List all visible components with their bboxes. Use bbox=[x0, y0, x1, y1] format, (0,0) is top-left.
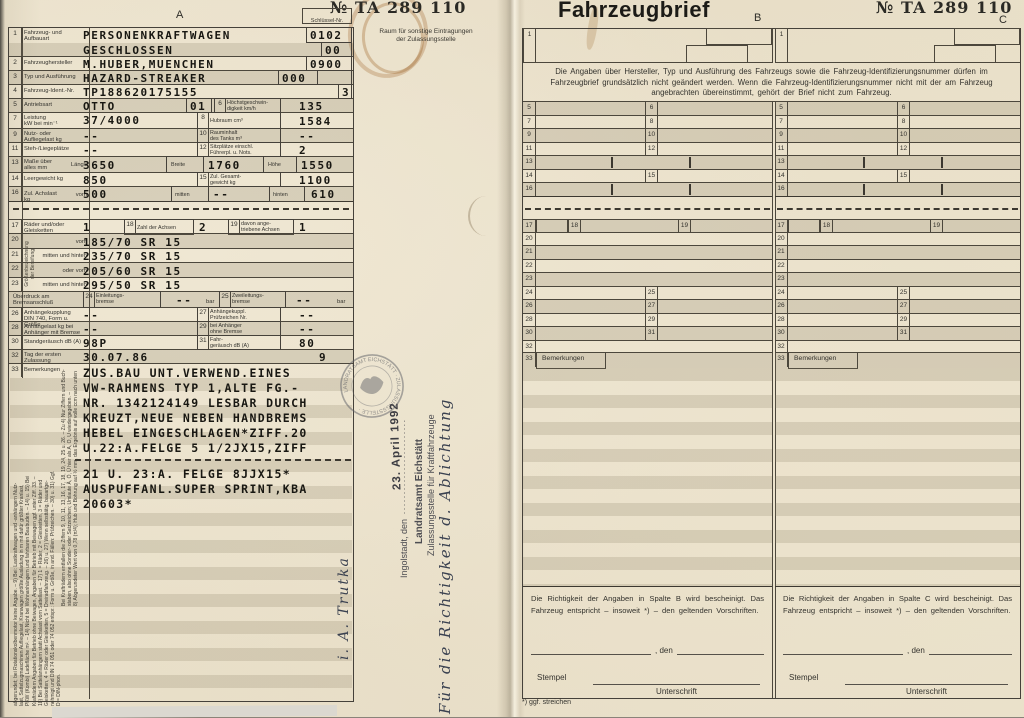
field-16-hinten-box: hinten bbox=[269, 186, 305, 202]
bemerkungen-text-2: 21 U. 23:A. FELGE 8JJX15* AUSPUFFANL.SUP… bbox=[83, 467, 308, 512]
field-11-value: -- bbox=[83, 144, 99, 157]
row-number-15: 15 bbox=[198, 173, 209, 186]
b-row-number-1: 1 bbox=[523, 28, 536, 63]
row-number-4: 4 bbox=[9, 85, 22, 98]
row-number-19: 19 bbox=[229, 220, 240, 234]
b-bem-label: Bemerkungen bbox=[542, 355, 584, 362]
field-24-labelbox: 24 Einleitungs- bremse bbox=[83, 291, 161, 308]
field-16-sublabel-mitten: mitten bbox=[175, 192, 207, 198]
b-n26: 26 bbox=[523, 300, 536, 313]
c-n23: 23 bbox=[775, 273, 788, 286]
c-row-11: 1112 bbox=[775, 143, 1020, 156]
b-row-13: 13 bbox=[523, 156, 772, 170]
b-n20: 20 bbox=[523, 233, 536, 245]
row-number-6: 6 bbox=[215, 99, 226, 112]
bc-divider-main bbox=[772, 102, 773, 698]
row-21: 21 mitten und hinten 235/70 SR 15 bbox=[9, 249, 353, 263]
section-dashed-line bbox=[13, 208, 349, 210]
c-n19: 19 bbox=[930, 219, 943, 233]
field-6-value: 135 bbox=[299, 100, 324, 113]
b-n14: 14 bbox=[523, 170, 536, 182]
stamp-dept-line: Zulassungsstelle für Kraftfahrzeuge bbox=[426, 302, 436, 556]
c-row-14: 1415 bbox=[775, 170, 1020, 183]
c-row-22: 22 bbox=[775, 260, 1020, 273]
notice-band: Die Angaben über Hersteller, Typ und Aus… bbox=[523, 63, 1020, 102]
field-8-label: Hubraum cm³ bbox=[210, 118, 279, 124]
row-13: 13 Maße über alles mm Länge 3650 Breite … bbox=[9, 157, 353, 173]
c-n24: 24 bbox=[775, 287, 788, 299]
row-number-5: 5 bbox=[9, 99, 22, 112]
field-25-label: Zweileitungs- bremse bbox=[232, 293, 284, 305]
field-8-labelbox: 8 Hubraum cm³ bbox=[197, 112, 281, 129]
c-row-23: 23 bbox=[775, 273, 1020, 287]
field-2-code: 0900 bbox=[306, 56, 352, 71]
field-6-label: Höchstgeschwin- digkeit km/h bbox=[227, 100, 279, 112]
b-17-subbox bbox=[536, 219, 568, 233]
row-22: 22 oder vorn 205/60 SR 15 bbox=[9, 263, 353, 278]
cert-b-text: Die Richtigkeit der Angaben in Spalte B … bbox=[531, 593, 764, 616]
row-number-11: 11 bbox=[9, 143, 22, 156]
b-n28: 28 bbox=[523, 314, 536, 326]
footnotes-column-b: Bei Krafträdern entfallen die Ziffern 9,… bbox=[61, 366, 87, 606]
b-16-tick2 bbox=[689, 184, 691, 195]
field-13-length: 3650 bbox=[83, 159, 116, 172]
c-row-33: 33 Bemerkungen bbox=[775, 353, 1020, 368]
field-7-value: 37/4000 bbox=[83, 114, 141, 127]
field-24-value: -- bbox=[176, 294, 192, 307]
field-32-value: 30.07.86 bbox=[83, 351, 149, 364]
bc-divider-top bbox=[772, 29, 773, 63]
b-bem-stripes bbox=[523, 368, 772, 586]
b-n24: 24 bbox=[523, 287, 536, 299]
field-3-value: HAZARD-STREAKER bbox=[83, 72, 206, 85]
schluessel-nr-box: Schlüssel-Nr. bbox=[302, 8, 352, 24]
field-32-code: 9 bbox=[319, 351, 327, 364]
cert-block-c: Die Richtigkeit der Angaben in Spalte C … bbox=[775, 586, 1020, 698]
field-13-sublabel-hoehe: Höhe bbox=[268, 162, 295, 168]
c-n28: 28 bbox=[775, 314, 788, 326]
field-21-sublabel: mitten und hinten bbox=[39, 253, 87, 259]
cert-b-den-label: , den bbox=[651, 646, 677, 655]
field-16-label: Zul. Achslast kg bbox=[24, 191, 64, 204]
row-number-20: 20 bbox=[9, 234, 22, 248]
c-n15: 15 bbox=[897, 169, 910, 183]
b-row-14: 1415 bbox=[523, 170, 772, 183]
b-row1-subbox-bottom bbox=[686, 45, 748, 63]
field-19-labelbox: 19 davon ange- triebene Achsen bbox=[228, 219, 294, 235]
field-16-middle: -- bbox=[213, 188, 229, 201]
row-number-21: 21 bbox=[9, 249, 22, 262]
row-1b: GESCHLOSSEN 00 bbox=[9, 43, 353, 57]
b-n12: 12 bbox=[645, 142, 658, 156]
field-8-value: 1584 bbox=[299, 115, 332, 128]
b-n27: 27 bbox=[645, 299, 658, 314]
field-16-mitten-box: mitten bbox=[171, 186, 209, 202]
field-16-sublabel-hinten: hinten bbox=[273, 192, 303, 198]
stamp-city-line: Ingolstadt, den bbox=[399, 519, 409, 578]
b-row-9: 910 bbox=[523, 129, 772, 143]
raum-note: Raum für sonstige Eintragungen der Zulas… bbox=[360, 28, 492, 44]
cert-c-date-line: , den bbox=[783, 644, 1012, 655]
row-number-10: 10 bbox=[198, 129, 209, 142]
scan-edge-left bbox=[0, 0, 5, 717]
c-row1-subbox-bottom bbox=[934, 45, 996, 63]
row-number-18: 18 bbox=[125, 220, 136, 234]
field-9-label: Nutz- oder Aufliegelast kg bbox=[24, 131, 86, 144]
field-3-code: 000 bbox=[278, 70, 318, 85]
field-23-sublabel: mitten und hinten bbox=[39, 282, 87, 288]
c-n10: 10 bbox=[897, 128, 910, 143]
c-n26: 26 bbox=[775, 300, 788, 313]
row-number-24: 24 bbox=[84, 292, 95, 307]
stain-arc-fold bbox=[468, 196, 504, 236]
row-number-2: 2 bbox=[9, 57, 22, 70]
field-27-label: Anhängekuppl. Prüfzeichen Nr. bbox=[210, 309, 279, 321]
b-n33: 33 bbox=[523, 353, 536, 367]
b-row-23: 23 bbox=[523, 273, 772, 287]
c-n29: 29 bbox=[897, 313, 910, 327]
c-n33: 33 bbox=[775, 353, 788, 367]
grid-block-c: 56 78 910 1112 13 1415 16 17 18 19 20 21… bbox=[775, 102, 1020, 586]
b-n19: 19 bbox=[678, 219, 691, 233]
b-row-20: 20 bbox=[523, 233, 772, 246]
field-17-label: Räder und/oder Gleisketten bbox=[24, 222, 86, 235]
field-22-sublabel: oder vorn bbox=[39, 268, 87, 274]
c-row-5: 56 bbox=[775, 102, 1020, 116]
field-6-labelbox: 6 Höchstgeschwin- digkeit km/h bbox=[214, 98, 281, 113]
b-13-tick1 bbox=[611, 157, 613, 168]
field-28-value: -- bbox=[83, 323, 99, 336]
field-13-height: 1550 bbox=[301, 159, 334, 172]
office-stamp-block: Ingolstadt, den ························… bbox=[394, 302, 440, 578]
field-14-value: 850 bbox=[83, 174, 108, 187]
row-2: 2 Fahrzeughersteller M.HUBER,MUENCHEN 09… bbox=[9, 57, 353, 71]
field-29-value: -- bbox=[299, 323, 315, 336]
c-n31: 31 bbox=[897, 326, 910, 341]
cert-c-place-line bbox=[783, 644, 903, 655]
field-4-value: TP188620175155 bbox=[83, 86, 198, 99]
c-bem-stripes bbox=[775, 368, 1020, 586]
c-n14: 14 bbox=[775, 170, 788, 182]
row-20: 20 vorn 185/70 SR 15 bbox=[9, 234, 353, 249]
c-row1-subbox-top bbox=[954, 28, 1020, 45]
b-row-16: 16 bbox=[523, 183, 772, 197]
field-5-value: OTTO bbox=[83, 100, 116, 113]
c-17-subbox bbox=[788, 219, 820, 233]
cert-b-unterschrift-label: Unterschrift bbox=[656, 687, 697, 696]
field-18-value: 2 bbox=[199, 221, 207, 234]
field-16-rear: 610 bbox=[311, 188, 336, 201]
field-15-label: Zul. Gesamt- gewicht kg bbox=[210, 174, 279, 186]
cert-block-b: Die Richtigkeit der Angaben in Spalte B … bbox=[523, 586, 772, 698]
column-b-label: B bbox=[754, 12, 761, 24]
b-n25: 25 bbox=[645, 286, 658, 300]
cert-c-date-rule bbox=[929, 644, 1012, 655]
b-n29: 29 bbox=[645, 313, 658, 327]
c-n11: 11 bbox=[775, 143, 788, 155]
field-1b-code: 00 bbox=[321, 42, 352, 57]
field-30-label: Standgeräusch dB (A) bbox=[24, 339, 86, 345]
b-n8: 8 bbox=[645, 115, 658, 129]
c-n8: 8 bbox=[897, 115, 910, 129]
c-n22: 22 bbox=[775, 260, 788, 272]
c-row-13: 13 bbox=[775, 156, 1020, 170]
row-9: 9 Nutz- oder Aufliegelast kg -- 10 Raumi… bbox=[9, 129, 353, 143]
c-n17: 17 bbox=[775, 220, 788, 233]
field-32-label: Tag der ersten Zulassung bbox=[24, 352, 86, 365]
c-n32: 32 bbox=[775, 341, 788, 352]
field-1-value: PERSONENKRAFTWAGEN bbox=[83, 29, 231, 42]
b-n13: 13 bbox=[523, 156, 536, 169]
field-10-label: Rauminhalt des Tanks m³ bbox=[210, 130, 279, 142]
b-n17: 17 bbox=[523, 220, 536, 233]
c-16-tick2 bbox=[941, 184, 943, 195]
field-27-labelbox: 27 Anhängekuppl. Prüfzeichen Nr. bbox=[197, 307, 281, 322]
row-32: 32 Tag der ersten Zulassung 30.07.86 9 bbox=[9, 350, 353, 364]
schluessel-nr-label: Schlüssel-Nr. bbox=[311, 18, 343, 24]
cert-c-stempel-label: Stempel bbox=[789, 673, 818, 682]
row-number-17: 17 bbox=[9, 220, 22, 234]
row-30: 30 Standgeräusch dB (A) 98P 31 Fahr- ger… bbox=[9, 336, 353, 350]
document-title: Fahrzeugbrief bbox=[558, 0, 710, 23]
b-row-17: 17 18 19 bbox=[523, 219, 772, 233]
c-dashed-line bbox=[777, 208, 1018, 210]
row-number-23: 23 bbox=[9, 278, 22, 291]
field-3-code-empty bbox=[317, 70, 352, 85]
b-n7: 7 bbox=[523, 116, 536, 128]
c-bem-labelbox: Bemerkungen bbox=[788, 352, 858, 369]
c-row-26: 2627 bbox=[775, 300, 1020, 314]
cert-b-date-rule bbox=[677, 644, 764, 655]
field-24-header-label: Überdruck am Bremsanschluß bbox=[13, 294, 87, 307]
field-2-value: M.HUBER,MUENCHEN bbox=[83, 58, 215, 71]
field-24-label: Einleitungs- bremse bbox=[96, 293, 159, 305]
c-n5: 5 bbox=[775, 102, 788, 115]
row-number-26: 26 bbox=[9, 308, 22, 321]
scan-edge-bottom bbox=[52, 705, 337, 718]
right-page-footnote: *) ggf. streichen bbox=[522, 699, 571, 706]
c-n6: 6 bbox=[897, 101, 910, 116]
column-a-label: A bbox=[176, 9, 183, 21]
field-1b-value: GESCHLOSSEN bbox=[83, 44, 173, 57]
b-row-1: 1 bbox=[523, 29, 772, 63]
field-21-value: 235/70 SR 15 bbox=[83, 250, 182, 263]
cert-b-date-line: , den bbox=[531, 644, 764, 655]
field-11-label: Steh-/Liegeplätze bbox=[24, 146, 86, 152]
c-n27: 27 bbox=[897, 299, 910, 314]
field-13-width: 1760 bbox=[208, 159, 241, 172]
stamp-office-line: Landratsamt Eichstätt bbox=[414, 302, 425, 544]
c-n30: 30 bbox=[775, 327, 788, 340]
row-14: 14 Leergewicht kg 850 15 Zul. Gesamt- ge… bbox=[9, 173, 353, 187]
c-n18: 18 bbox=[820, 219, 833, 233]
c-n20: 20 bbox=[775, 233, 788, 245]
cert-b-place-line bbox=[531, 644, 651, 655]
c-n25: 25 bbox=[897, 286, 910, 300]
field-5-label: Antriebsart bbox=[24, 102, 86, 108]
field-15-labelbox: 15 Zul. Gesamt- gewicht kg bbox=[197, 172, 281, 187]
row-number-13: 13 bbox=[9, 157, 22, 172]
c-row-20: 20 bbox=[775, 233, 1020, 246]
field-13-breite-box: Breite bbox=[166, 156, 204, 173]
row-number-16: 16 bbox=[9, 187, 22, 201]
field-7-label: Leistung kW bei min⁻¹ bbox=[24, 115, 86, 128]
field-26-value: -- bbox=[83, 309, 99, 322]
row-number-25: 25 bbox=[220, 292, 231, 307]
b-n16: 16 bbox=[523, 183, 536, 196]
field-25-unit: bar bbox=[337, 299, 351, 305]
cert-b-stempel-label: Stempel bbox=[537, 673, 566, 682]
serial-number-right: № TA 289 110 bbox=[876, 0, 1012, 17]
b-n32: 32 bbox=[523, 341, 536, 352]
right-form-table: 1 1 Die Angaben über Hersteller, Typ und… bbox=[522, 28, 1021, 699]
row-17: 17 Räder und/oder Gleisketten 1 18 Zahl … bbox=[9, 219, 353, 234]
eagle-emblem-icon bbox=[358, 374, 385, 396]
c-13-tick2 bbox=[941, 157, 943, 168]
field-12-label: Sitzplätze einschl. Führerpl. u. Nots. bbox=[210, 144, 279, 156]
row-number-22: 22 bbox=[9, 263, 22, 277]
field-4-code: 3 bbox=[338, 84, 352, 99]
row-number-31: 31 bbox=[198, 336, 209, 349]
field-13-label: Maße über alles mm bbox=[24, 159, 60, 172]
b-row1-subbox-top bbox=[706, 28, 772, 45]
c-row-9: 910 bbox=[775, 129, 1020, 143]
c-row-30: 3031 bbox=[775, 327, 1020, 341]
field-10-value: -- bbox=[299, 130, 315, 143]
b-row-26: 2627 bbox=[523, 300, 772, 314]
row-16: 16 Zul. Achslast kg vorn 500 mitten -- h… bbox=[9, 187, 353, 202]
field-9-value: -- bbox=[83, 130, 99, 143]
field-24-unit: bar bbox=[206, 299, 220, 305]
c-n13: 13 bbox=[775, 156, 788, 169]
notice-text: Die Angaben über Hersteller, Typ und Aus… bbox=[537, 67, 1006, 99]
row-28: 28 Anhängelast kg bei Anhänger mit Brems… bbox=[9, 322, 353, 336]
c-13-tick1 bbox=[863, 157, 865, 168]
b-n18: 18 bbox=[568, 219, 581, 233]
cert-c-unterschrift: Unterschrift bbox=[845, 684, 1008, 696]
field-1-code: 0102 bbox=[306, 27, 352, 43]
field-4-label: Fahrzeug-Ident.-Nr. bbox=[24, 88, 86, 94]
b-n15: 15 bbox=[645, 169, 658, 183]
cert-b-unterschrift: Unterschrift bbox=[593, 684, 760, 696]
b-row-33: 33 Bemerkungen bbox=[523, 353, 772, 368]
c-n21: 21 bbox=[775, 246, 788, 259]
c-16-tick1 bbox=[863, 184, 865, 195]
field-29-label: bei Anhänger ohne Bremse bbox=[210, 323, 279, 335]
field-16-front: 500 bbox=[83, 188, 108, 201]
b-n10: 10 bbox=[645, 128, 658, 143]
b-16-tick1 bbox=[611, 184, 613, 195]
field-18-label: Zahl der Achsen bbox=[137, 225, 192, 231]
field-14-label: Leergewicht kg bbox=[24, 176, 86, 182]
field-19-value: 1 bbox=[299, 221, 307, 234]
row-number-8: 8 bbox=[198, 113, 209, 128]
field-20-sublabel: vorn bbox=[39, 239, 87, 245]
bemerkungen-dashed-line bbox=[75, 459, 351, 461]
c-row-17: 17 18 19 bbox=[775, 219, 1020, 233]
field-13-hoehe-box: Höhe bbox=[263, 156, 297, 173]
row-7: 7 Leistung kW bei min⁻¹ 37/4000 8 Hubrau… bbox=[9, 113, 353, 129]
row-3: 3 Typ und Ausführung HAZARD-STREAKER 000 bbox=[9, 71, 353, 85]
field-5-code: 01 bbox=[186, 98, 212, 113]
row-number-33: 33 bbox=[9, 364, 22, 377]
field-1-label: Fahrzeug- und Aufbauart bbox=[24, 30, 86, 43]
field-25-labelbox: 25 Zweileitungs- bremse bbox=[219, 291, 286, 308]
row-23: 23 mitten und hinten 295/50 SR 15 bbox=[9, 278, 353, 292]
row-1a: 1 Fahrzeug- und Aufbauart PERSONENKRAFTW… bbox=[9, 28, 353, 43]
row-24: Überdruck am Bremsanschluß 24 Einleitung… bbox=[9, 292, 353, 308]
row-number-12: 12 bbox=[198, 143, 209, 156]
handwritten-signature: i. A. Trutka bbox=[336, 528, 362, 660]
row-number-3: 3 bbox=[9, 71, 22, 84]
c-n7: 7 bbox=[775, 116, 788, 128]
b-n5: 5 bbox=[523, 102, 536, 115]
center-fold-crease bbox=[497, 0, 525, 717]
field-18-labelbox: 18 Zahl der Achsen bbox=[124, 219, 194, 235]
field-17-value: 1 bbox=[83, 221, 91, 234]
field-30-value: 98P bbox=[83, 337, 108, 350]
field-31-labelbox: 31 Fahr- geräusch dB (A) bbox=[197, 335, 281, 350]
field-19-label: davon ange- triebene Achsen bbox=[241, 221, 292, 233]
b-n9: 9 bbox=[523, 129, 536, 142]
c-row-21: 21 bbox=[775, 246, 1020, 260]
row-5: 5 Antriebsart OTTO 01 6 Höchstgeschwin- … bbox=[9, 99, 353, 113]
b-n30: 30 bbox=[523, 327, 536, 340]
cert-c-text: Die Richtigkeit der Angaben in Spalte C … bbox=[783, 593, 1012, 616]
row-number-32: 32 bbox=[9, 350, 22, 363]
handwritten-note: Für die Richtigkeit d. Ablichtung bbox=[436, 324, 472, 714]
b-n22: 22 bbox=[523, 260, 536, 272]
c-row-16: 16 bbox=[775, 183, 1020, 197]
b-dashed-line bbox=[525, 208, 770, 210]
c-n16: 16 bbox=[775, 183, 788, 196]
field-2-label: Fahrzeughersteller bbox=[24, 60, 86, 66]
c-n9: 9 bbox=[775, 129, 788, 142]
field-31-label: Fahr- geräusch dB (A) bbox=[210, 337, 279, 349]
date-stamp: 23. April 1992 bbox=[388, 402, 403, 490]
field-13-sublabel-breite: Breite bbox=[171, 162, 202, 168]
field-3-label: Typ und Ausführung bbox=[24, 74, 86, 80]
row-number-9: 9 bbox=[9, 129, 22, 142]
b-n23: 23 bbox=[523, 273, 536, 286]
row-11: 11 Steh-/Liegeplätze -- 12 Sitzplätze ei… bbox=[9, 143, 353, 157]
field-28-label: Anhängelast kg bei Anhänger mit Bremse bbox=[24, 324, 86, 337]
c-row-number-1: 1 bbox=[775, 28, 788, 63]
footnotes-column-a: abgerundet; bei Rotationskolbenmotor kei… bbox=[13, 388, 63, 706]
b-n31: 31 bbox=[645, 326, 658, 341]
b-row-5: 56 bbox=[523, 102, 772, 116]
field-10-labelbox: 10 Rauminhalt des Tanks m³ bbox=[197, 128, 281, 143]
row-number-29: 29 bbox=[198, 322, 209, 335]
cert-c-unterschrift-label: Unterschrift bbox=[906, 687, 947, 696]
row-26: 26 Anhängekupplung DIN 740, Form u. Größ… bbox=[9, 308, 353, 322]
field-25-value: -- bbox=[296, 294, 312, 307]
b-row-11: 1112 bbox=[523, 143, 772, 156]
b-row-30: 3031 bbox=[523, 327, 772, 341]
bemerkungen-text-1: ZUS.BAU UNT.VERWEND.EINES VW-RAHMENS TYP… bbox=[83, 366, 308, 456]
row-4: 4 Fahrzeug-Ident.-Nr. TP188620175155 3 bbox=[9, 85, 353, 99]
column-c-label: C bbox=[999, 14, 1007, 26]
b-n21: 21 bbox=[523, 246, 536, 259]
field-12-value: 2 bbox=[299, 144, 307, 157]
c-row-1: 1 bbox=[775, 29, 1020, 63]
cert-c-den-label: , den bbox=[903, 646, 929, 655]
c-bem-label: Bemerkungen bbox=[794, 355, 836, 362]
row-number-7: 7 bbox=[9, 113, 22, 128]
field-22-value: 205/60 SR 15 bbox=[83, 265, 182, 278]
row-number-27: 27 bbox=[198, 308, 209, 321]
field-29-labelbox: 29 bei Anhänger ohne Bremse bbox=[197, 321, 281, 336]
